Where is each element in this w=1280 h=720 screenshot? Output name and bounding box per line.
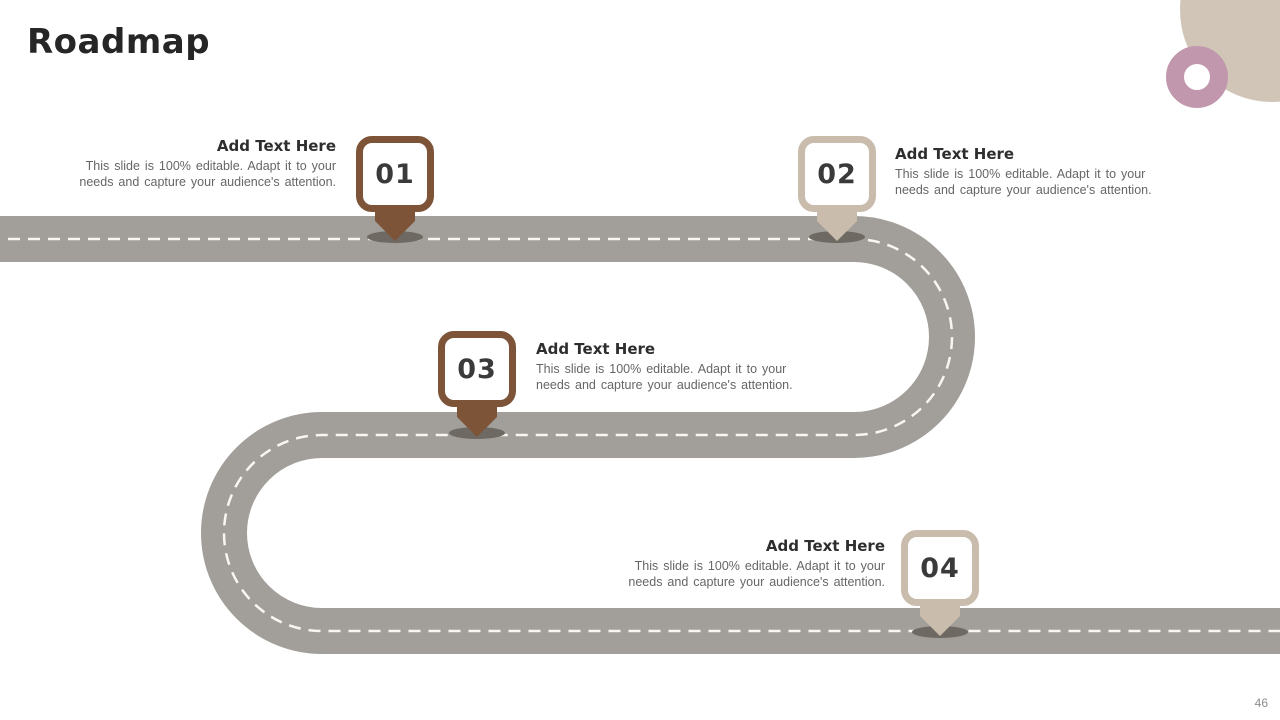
marker-04-number: 04 [920, 553, 960, 584]
marker-01-number: 01 [375, 159, 415, 190]
marker-03-text-block[interactable]: Add Text Here This slide is 100% editabl… [536, 341, 826, 393]
marker-01-text-block[interactable]: Add Text Here This slide is 100% editabl… [46, 138, 336, 190]
marker-02-text-block[interactable]: Add Text Here This slide is 100% editabl… [895, 146, 1185, 198]
marker-03-heading[interactable]: Add Text Here [536, 341, 826, 358]
page-number: 46 [1255, 696, 1268, 710]
marker-01-body-line: This slide is 100% editable. Adapt it to… [46, 159, 336, 175]
marker-02-body-line: This slide is 100% editable. Adapt it to… [895, 167, 1185, 183]
marker-01-box[interactable]: 01 [356, 136, 434, 212]
marker-01-heading[interactable]: Add Text Here [46, 138, 336, 155]
marker-04-body-line: needs and capture your audience's attent… [595, 575, 885, 591]
marker-02-box[interactable]: 02 [798, 136, 876, 212]
marker-04-box[interactable]: 04 [901, 530, 979, 606]
marker-02-number: 02 [817, 159, 857, 190]
marker-03-box[interactable]: 03 [438, 331, 516, 407]
marker-03-body-line: This slide is 100% editable. Adapt it to… [536, 362, 826, 378]
marker-02-heading[interactable]: Add Text Here [895, 146, 1185, 163]
marker-04-text-block[interactable]: Add Text Here This slide is 100% editabl… [595, 538, 885, 590]
marker-03-number: 03 [457, 354, 497, 385]
slide-canvas: Roadmap 01 Add Text Here This slide is 1… [0, 0, 1280, 720]
marker-04-body-line: This slide is 100% editable. Adapt it to… [595, 559, 885, 575]
marker-03-body-line: needs and capture your audience's attent… [536, 378, 826, 394]
marker-01-body-line: needs and capture your audience's attent… [46, 175, 336, 191]
marker-04-heading[interactable]: Add Text Here [595, 538, 885, 555]
marker-02-body-line: needs and capture your audience's attent… [895, 183, 1185, 199]
